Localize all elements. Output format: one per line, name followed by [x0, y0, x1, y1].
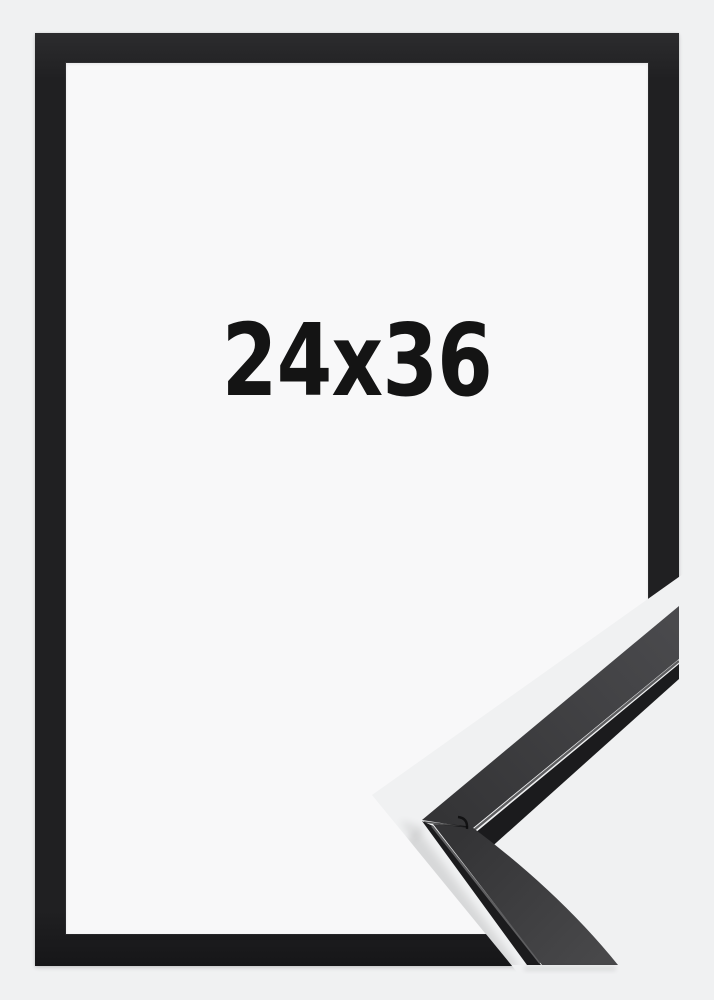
picture-frame: [35, 33, 679, 966]
arm-bottom-shadow: [524, 966, 616, 971]
frame-opening: [66, 63, 648, 934]
product-photo-canvas: 24x36: [0, 0, 714, 1000]
